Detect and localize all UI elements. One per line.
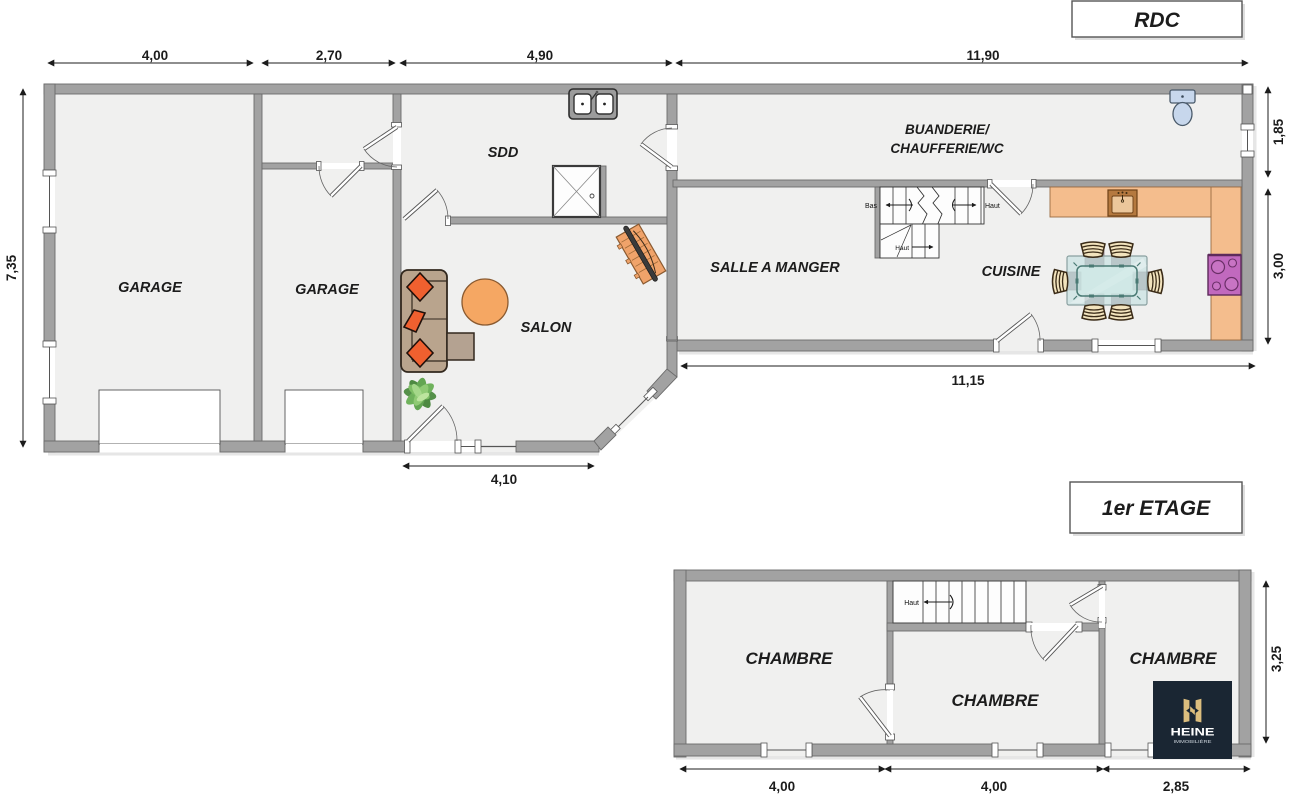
svg-text:1er ETAGE: 1er ETAGE xyxy=(1102,497,1211,520)
svg-text:2,70: 2,70 xyxy=(316,48,342,63)
svg-text:Haut: Haut xyxy=(985,203,1000,210)
svg-text:1,85: 1,85 xyxy=(1271,118,1286,145)
svg-text:4,90: 4,90 xyxy=(527,48,553,63)
svg-text:SDD: SDD xyxy=(488,145,519,161)
svg-text:4,00: 4,00 xyxy=(142,48,168,63)
svg-text:3,00: 3,00 xyxy=(1271,253,1286,279)
svg-text:GARAGE: GARAGE xyxy=(118,280,183,296)
svg-text:4,10: 4,10 xyxy=(491,472,517,487)
svg-text:11,15: 11,15 xyxy=(951,373,985,388)
svg-text:Haut: Haut xyxy=(895,245,909,252)
svg-text:CHAMBRE: CHAMBRE xyxy=(1130,649,1218,668)
svg-text:4,00: 4,00 xyxy=(981,779,1007,794)
svg-text:CHAMBRE: CHAMBRE xyxy=(746,649,834,668)
svg-text:SALLE A MANGER: SALLE A MANGER xyxy=(710,260,840,276)
svg-text:Bas: Bas xyxy=(865,203,878,210)
svg-text:HEINE: HEINE xyxy=(1171,727,1215,739)
svg-text:2,85: 2,85 xyxy=(1163,779,1190,794)
svg-text:7,35: 7,35 xyxy=(4,254,19,281)
svg-text:11,90: 11,90 xyxy=(966,48,999,63)
svg-text:CHAUFFERIE/WC: CHAUFFERIE/WC xyxy=(890,141,1003,156)
svg-text:RDC: RDC xyxy=(1134,9,1180,32)
svg-text:SALON: SALON xyxy=(521,320,572,336)
svg-text:CUISINE: CUISINE xyxy=(982,264,1042,280)
svg-text:IMMOBILIÈRE: IMMOBILIÈRE xyxy=(1174,738,1212,745)
svg-text:BUANDERIE/: BUANDERIE/ xyxy=(905,122,990,137)
svg-text:GARAGE: GARAGE xyxy=(295,282,360,298)
svg-text:Haut: Haut xyxy=(904,600,919,607)
svg-text:4,00: 4,00 xyxy=(769,779,795,794)
svg-text:3,25: 3,25 xyxy=(1269,645,1284,672)
svg-text:CHAMBRE: CHAMBRE xyxy=(952,691,1040,710)
